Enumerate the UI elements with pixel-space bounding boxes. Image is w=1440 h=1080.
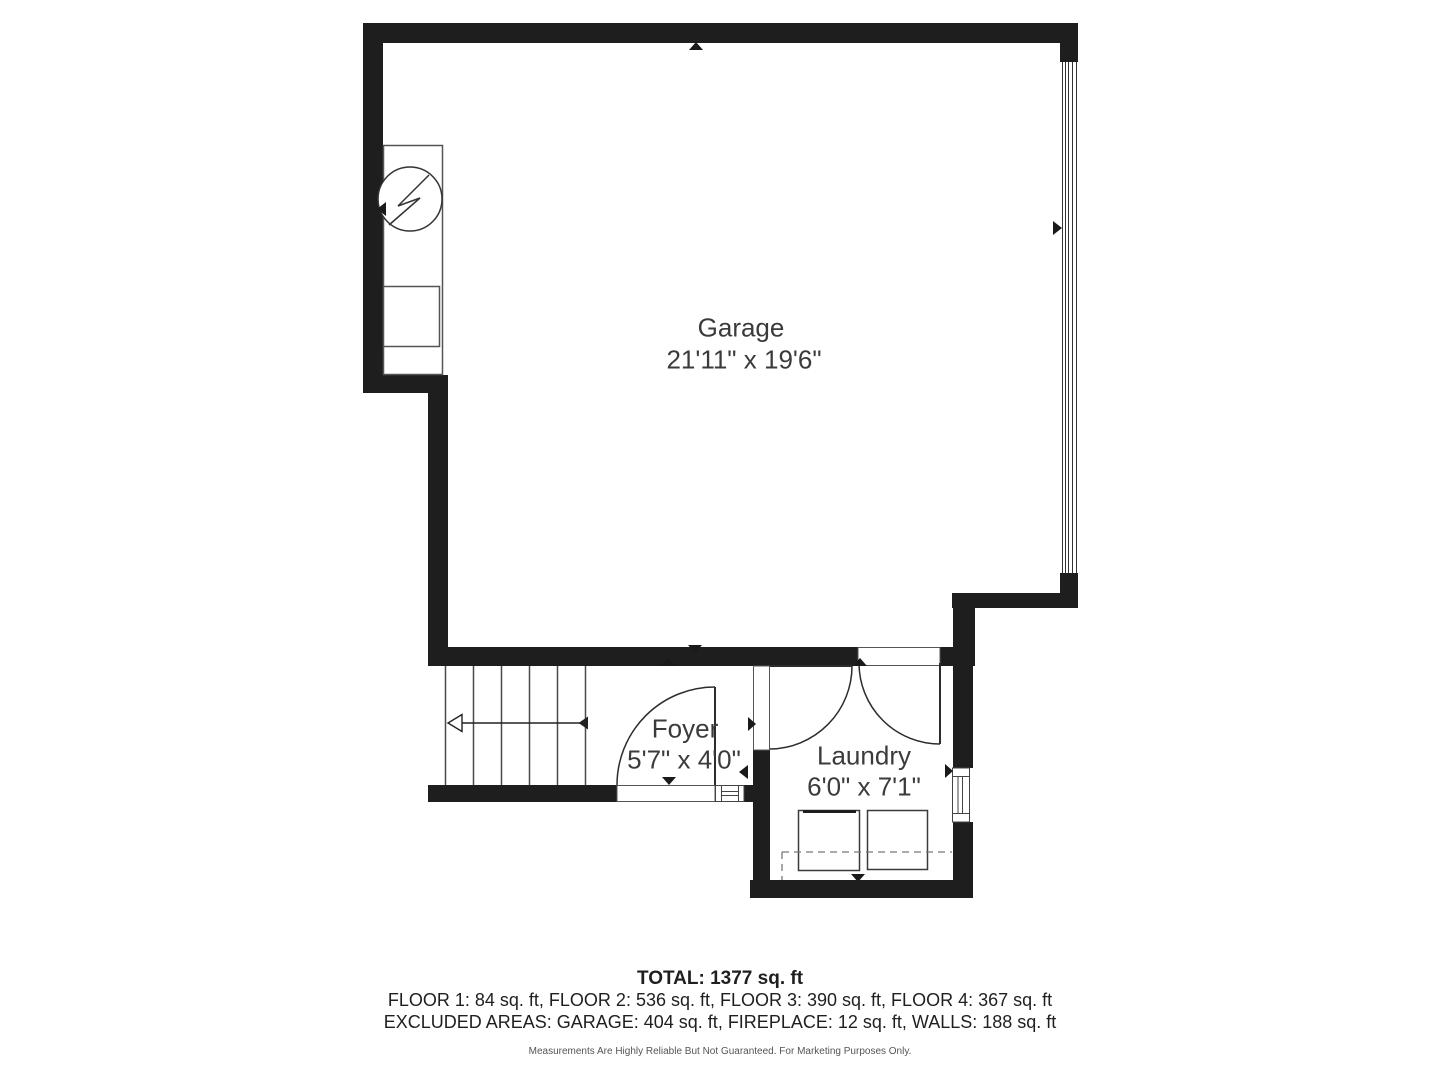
stair-direction-arrow xyxy=(448,715,588,732)
wall-segment xyxy=(1060,573,1078,608)
marker-triangle-down xyxy=(662,777,676,785)
marker-triangle-right xyxy=(945,764,953,778)
room-dims-laundry: 6'0" x 7'1" xyxy=(807,771,921,802)
floor-areas-text: FLOOR 1: 84 sq. ft, FLOOR 2: 536 sq. ft,… xyxy=(0,990,1440,1011)
floor-plan-canvas xyxy=(0,0,1440,1080)
wall-segment xyxy=(744,785,755,802)
laundry-right-door-arc xyxy=(859,663,940,744)
wall-segment xyxy=(428,785,617,802)
wall-segment xyxy=(753,750,770,898)
floor-plan-page: Garage 21'11" x 19'6" Foyer 5'7" x 4'0" … xyxy=(0,0,1440,1080)
wall-segment xyxy=(750,880,973,898)
stairs xyxy=(446,666,586,785)
laundry-top-door-opening xyxy=(858,648,940,666)
arrowhead-open xyxy=(448,715,462,732)
sidelight-window-icon xyxy=(716,786,745,802)
room-label-laundry: Laundry xyxy=(817,740,911,771)
arrowhead-solid xyxy=(579,717,589,730)
dryer-icon xyxy=(868,811,928,870)
laundry-left-door-opening xyxy=(754,666,770,750)
room-dims-garage: 21'11" x 19'6" xyxy=(666,344,821,375)
laundry-left-door-arc xyxy=(770,666,852,749)
disclaimer-text: Measurements Are Highly Reliable But Not… xyxy=(0,1046,1440,1057)
laundry-window-icon xyxy=(953,768,970,822)
total-area-text: TOTAL: 1377 sq. ft xyxy=(0,968,1440,990)
garage-door-icon xyxy=(1060,62,1078,573)
wall-segment xyxy=(1060,23,1078,62)
wall-segment xyxy=(428,375,448,666)
wall-segment xyxy=(428,647,858,666)
wall-segment xyxy=(953,608,975,666)
water-heater-icon xyxy=(378,146,443,375)
entry-door-opening xyxy=(617,786,715,802)
washer-icon xyxy=(799,811,860,871)
room-dims-foyer: 5'7" x 4'0" xyxy=(627,744,741,775)
wall-segment xyxy=(952,593,1078,608)
wall-segment xyxy=(363,23,1078,43)
excluded-areas-text: EXCLUDED AREAS: GARAGE: 404 sq. ft, FIRE… xyxy=(0,1012,1440,1033)
wall-segment xyxy=(953,666,973,768)
room-label-foyer: Foyer xyxy=(652,713,718,744)
marker-triangle-up xyxy=(689,42,703,50)
room-label-garage: Garage xyxy=(698,312,785,343)
